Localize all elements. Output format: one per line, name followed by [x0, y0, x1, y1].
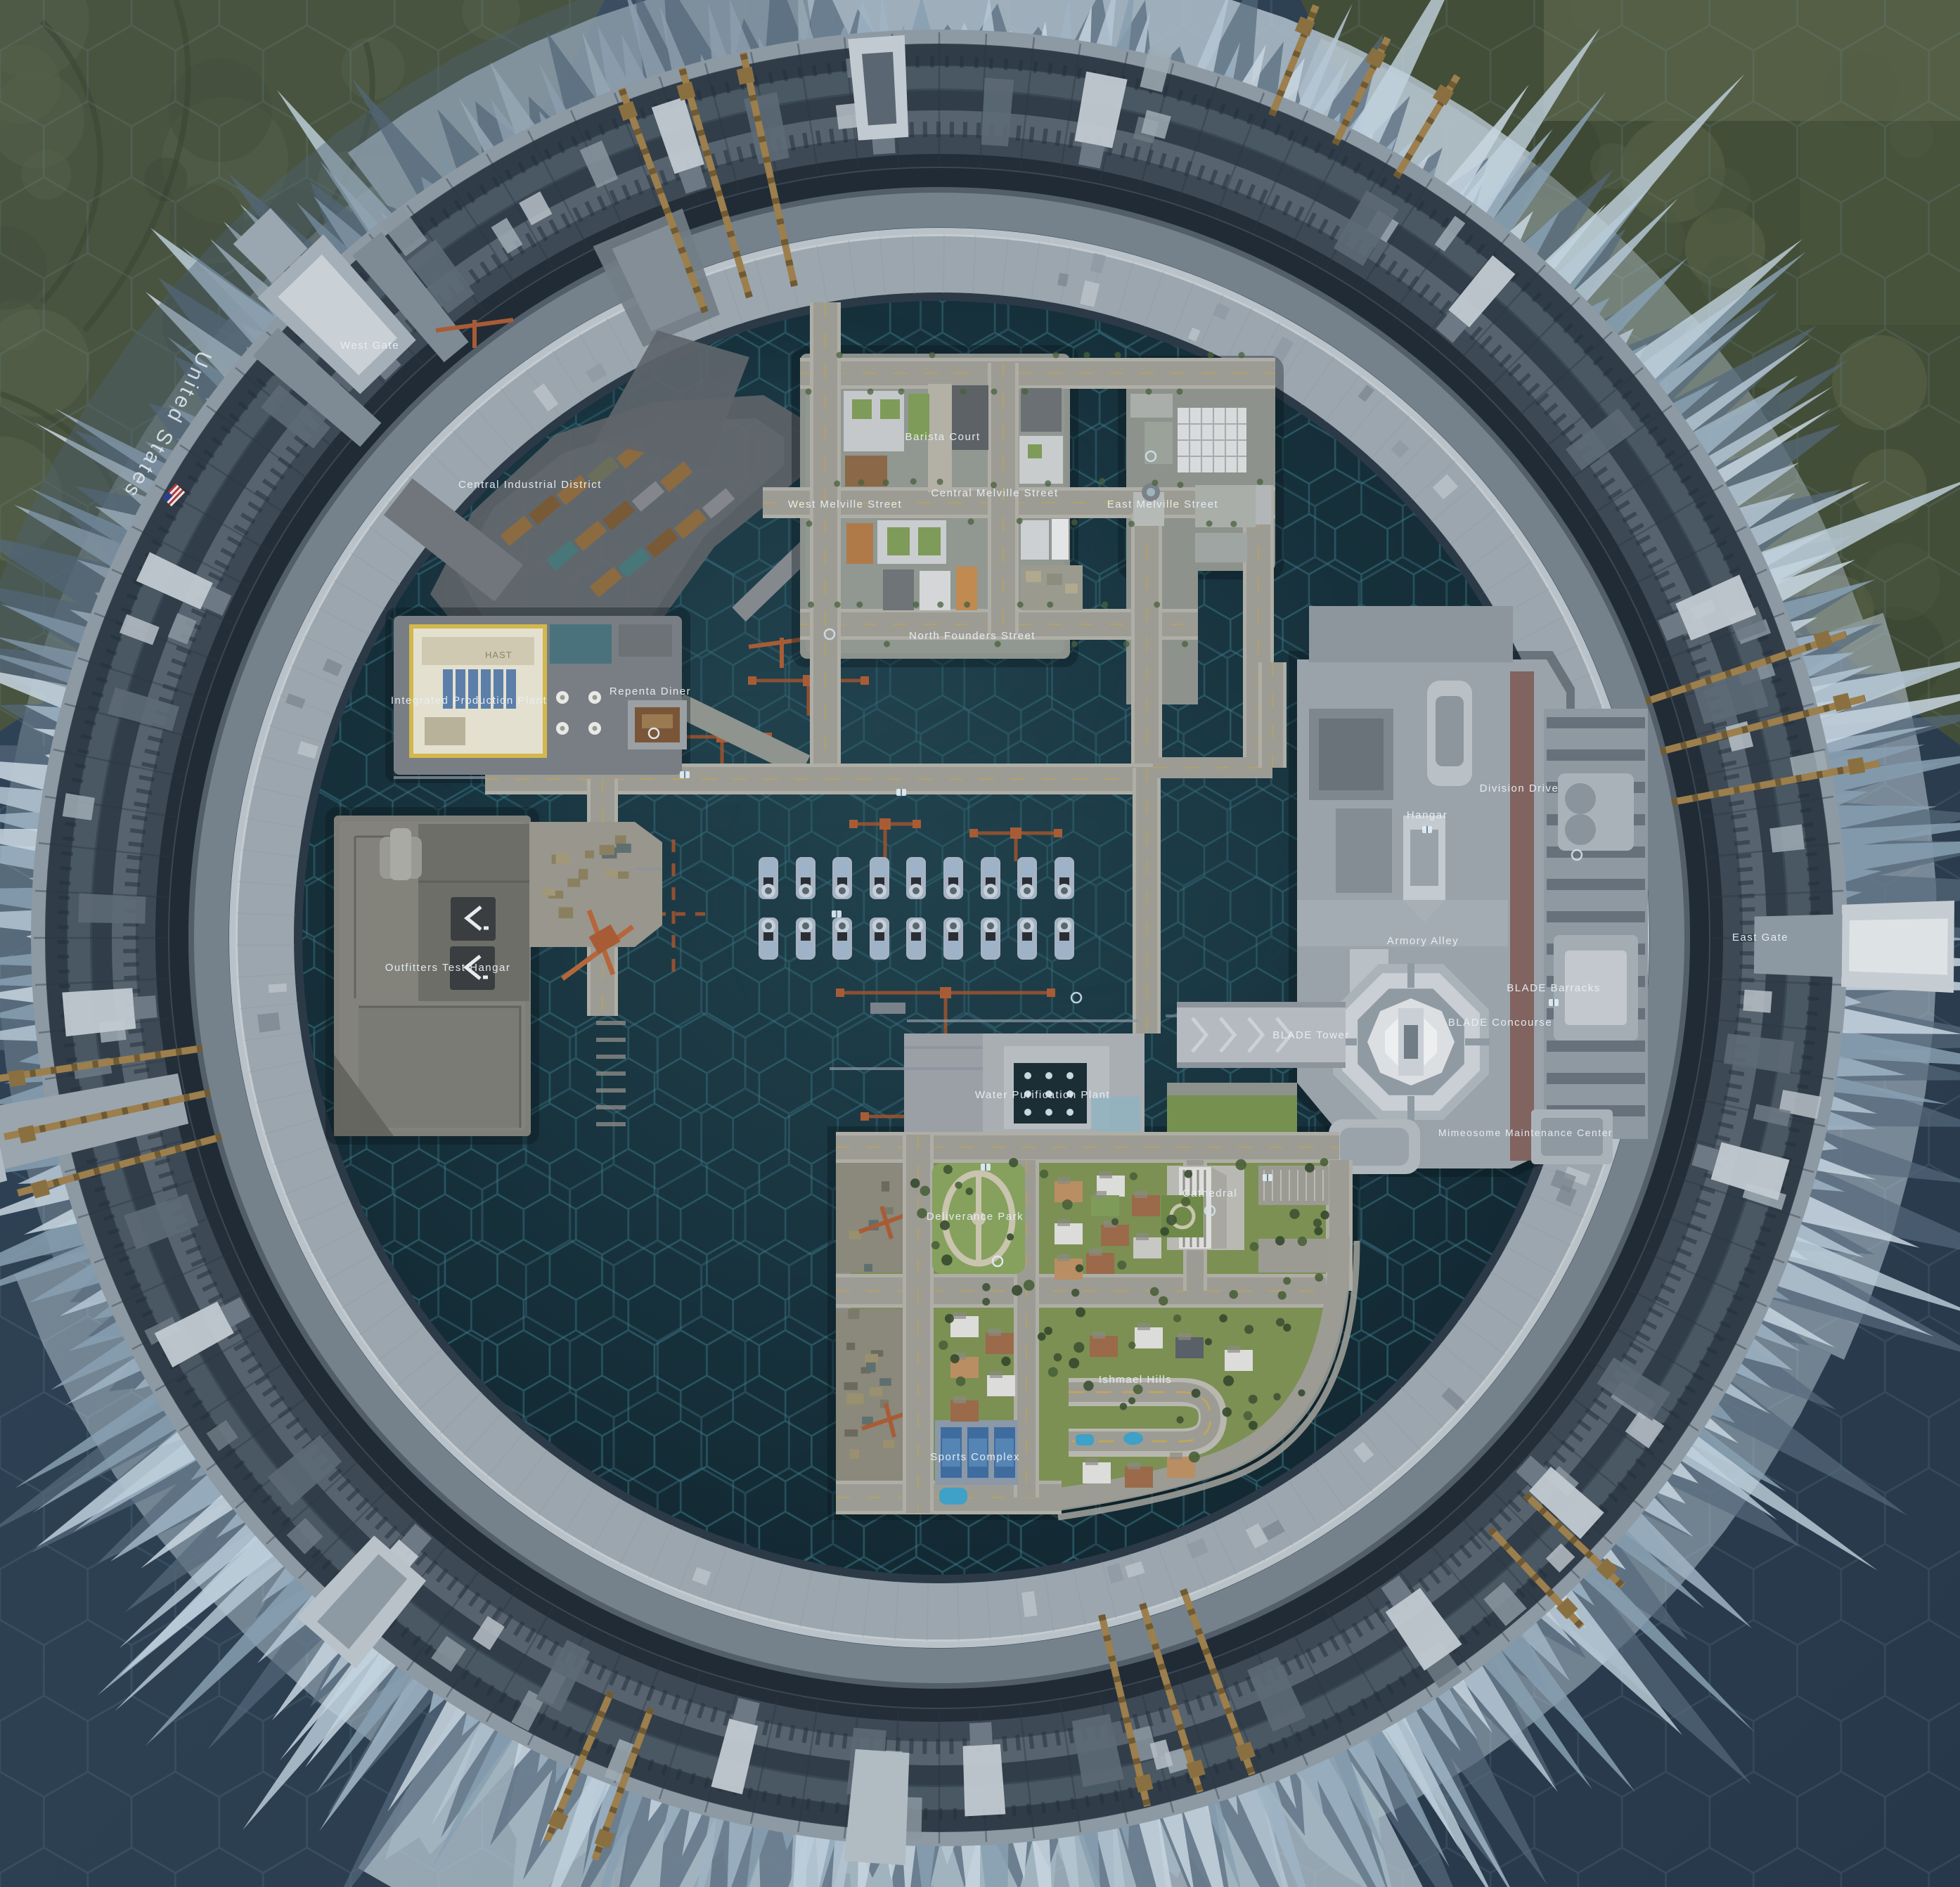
- svg-text:Water Purification Plant: Water Purification Plant: [975, 1089, 1110, 1101]
- svg-text:Integrated Production Plant: Integrated Production Plant: [391, 695, 547, 707]
- svg-text:Barista Court: Barista Court: [905, 431, 980, 443]
- svg-text:East Gate: East Gate: [1732, 932, 1788, 943]
- svg-text:Central Industrial District: Central Industrial District: [458, 479, 602, 491]
- svg-text:Sports Complex: Sports Complex: [930, 1451, 1020, 1463]
- svg-text:Division Drive: Division Drive: [1480, 783, 1559, 794]
- svg-text:Outfitters Test Hangar: Outfitters Test Hangar: [385, 962, 511, 974]
- svg-text:East Melville Street: East Melville Street: [1107, 498, 1218, 510]
- svg-text:Repenta Diner: Repenta Diner: [610, 685, 691, 697]
- svg-text:HAST: HAST: [485, 650, 512, 660]
- svg-text:Ishmael Hills: Ishmael Hills: [1099, 1374, 1173, 1386]
- svg-text:Cathedral: Cathedral: [1182, 1187, 1238, 1199]
- svg-text:West Gate: West Gate: [340, 340, 399, 352]
- svg-text:BLADE Barracks: BLADE Barracks: [1507, 982, 1601, 994]
- svg-text:Hangar: Hangar: [1407, 809, 1448, 821]
- svg-text:Central Melville Street: Central Melville Street: [931, 487, 1058, 499]
- svg-text:Armory Alley: Armory Alley: [1387, 935, 1459, 947]
- svg-text:BLADE Tower: BLADE Tower: [1272, 1029, 1350, 1041]
- svg-text:West Melville Street: West Melville Street: [788, 498, 902, 510]
- svg-text:BLADE Concourse: BLADE Concourse: [1448, 1017, 1552, 1029]
- svg-text:Mimeosome Maintenance Center: Mimeosome Maintenance Center: [1438, 1127, 1613, 1138]
- svg-text:North Founders Street: North Founders Street: [909, 630, 1036, 642]
- svg-text:Deliverance Park: Deliverance Park: [927, 1211, 1024, 1223]
